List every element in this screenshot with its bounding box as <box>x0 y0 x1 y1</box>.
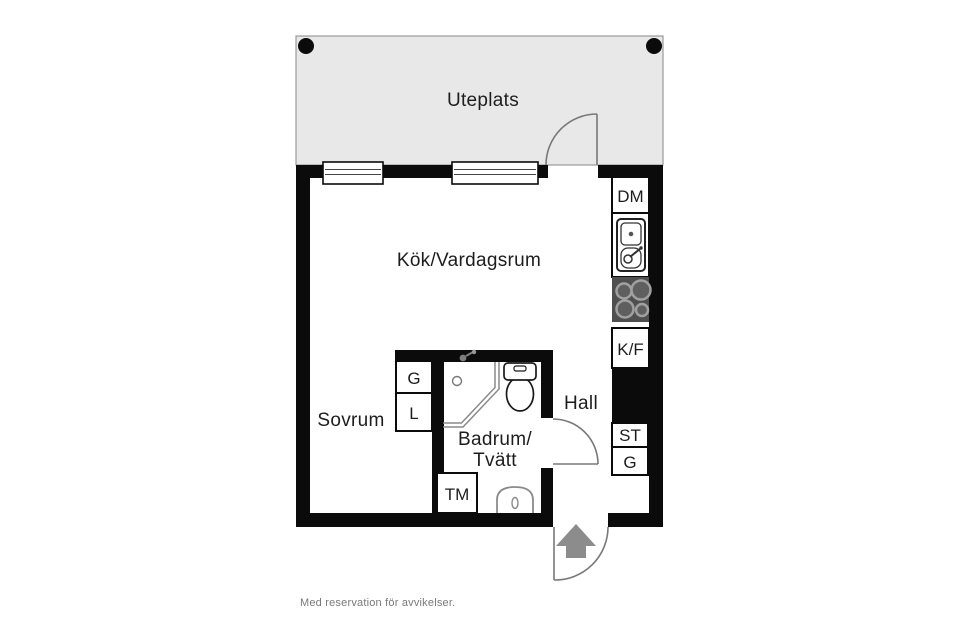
wall-kitchen-block <box>612 368 649 422</box>
bedroom-wardrobe-label: G <box>407 369 420 388</box>
washing-machine-label: TM <box>445 485 470 504</box>
kitchen-living-label: Kök/Vardagsrum <box>397 250 541 271</box>
wall-bathroom-right-lower <box>541 468 553 513</box>
floorplan-svg: Uteplats <box>0 0 960 640</box>
wall-bottom-seg1 <box>296 513 553 527</box>
wall-right <box>649 165 663 527</box>
burner-icon <box>632 281 651 300</box>
shower-drain-icon <box>453 377 462 386</box>
bathroom-label-line2: Tvätt <box>473 450 517 471</box>
patio-post-right-icon <box>646 38 662 54</box>
burner-icon <box>617 301 634 318</box>
bedroom-label: Sovrum <box>317 410 384 431</box>
sink-icon <box>612 213 649 277</box>
dishwasher-label: DM <box>617 187 643 206</box>
wall-top-seg2 <box>383 165 452 178</box>
wall-left <box>296 165 310 527</box>
doors <box>546 114 608 580</box>
washbasin-icon <box>497 487 533 513</box>
window-living-right-icon <box>452 162 538 184</box>
wall-bottom-seg2 <box>608 513 663 527</box>
patio-label: Uteplats <box>447 90 519 111</box>
burner-icon <box>617 284 632 299</box>
cleaning-closet-label: ST <box>619 426 641 445</box>
floorplan-canvas: Uteplats <box>0 0 960 640</box>
bathroom-door-icon <box>553 419 598 464</box>
window-living-left-icon <box>323 162 383 184</box>
wall-top-seg3 <box>538 165 548 178</box>
walls <box>296 165 663 527</box>
stove-icon <box>612 277 651 322</box>
wall-top-seg1 <box>296 165 323 178</box>
bathroom-label-line1: Badrum/ <box>458 429 532 450</box>
bedroom-linen-label: L <box>409 404 418 423</box>
burner-icon <box>636 304 648 316</box>
kitchen-strip: DM K/F ST G <box>612 177 651 475</box>
wall-bathroom-right-upper <box>541 350 553 418</box>
patio-post-left-icon <box>298 38 314 54</box>
bedroom-closets: G L <box>396 361 432 431</box>
shower-head-icon <box>460 355 467 362</box>
disclaimer-text: Med reservation för avvikelser. <box>300 597 455 609</box>
hall-wardrobe-label: G <box>623 453 636 472</box>
fridge-freezer-label: K/F <box>617 340 643 359</box>
toilet-icon <box>504 363 536 411</box>
entry-arrow-icon <box>556 524 596 558</box>
patio-area: Uteplats <box>296 36 663 165</box>
hall-label: Hall <box>564 393 598 414</box>
